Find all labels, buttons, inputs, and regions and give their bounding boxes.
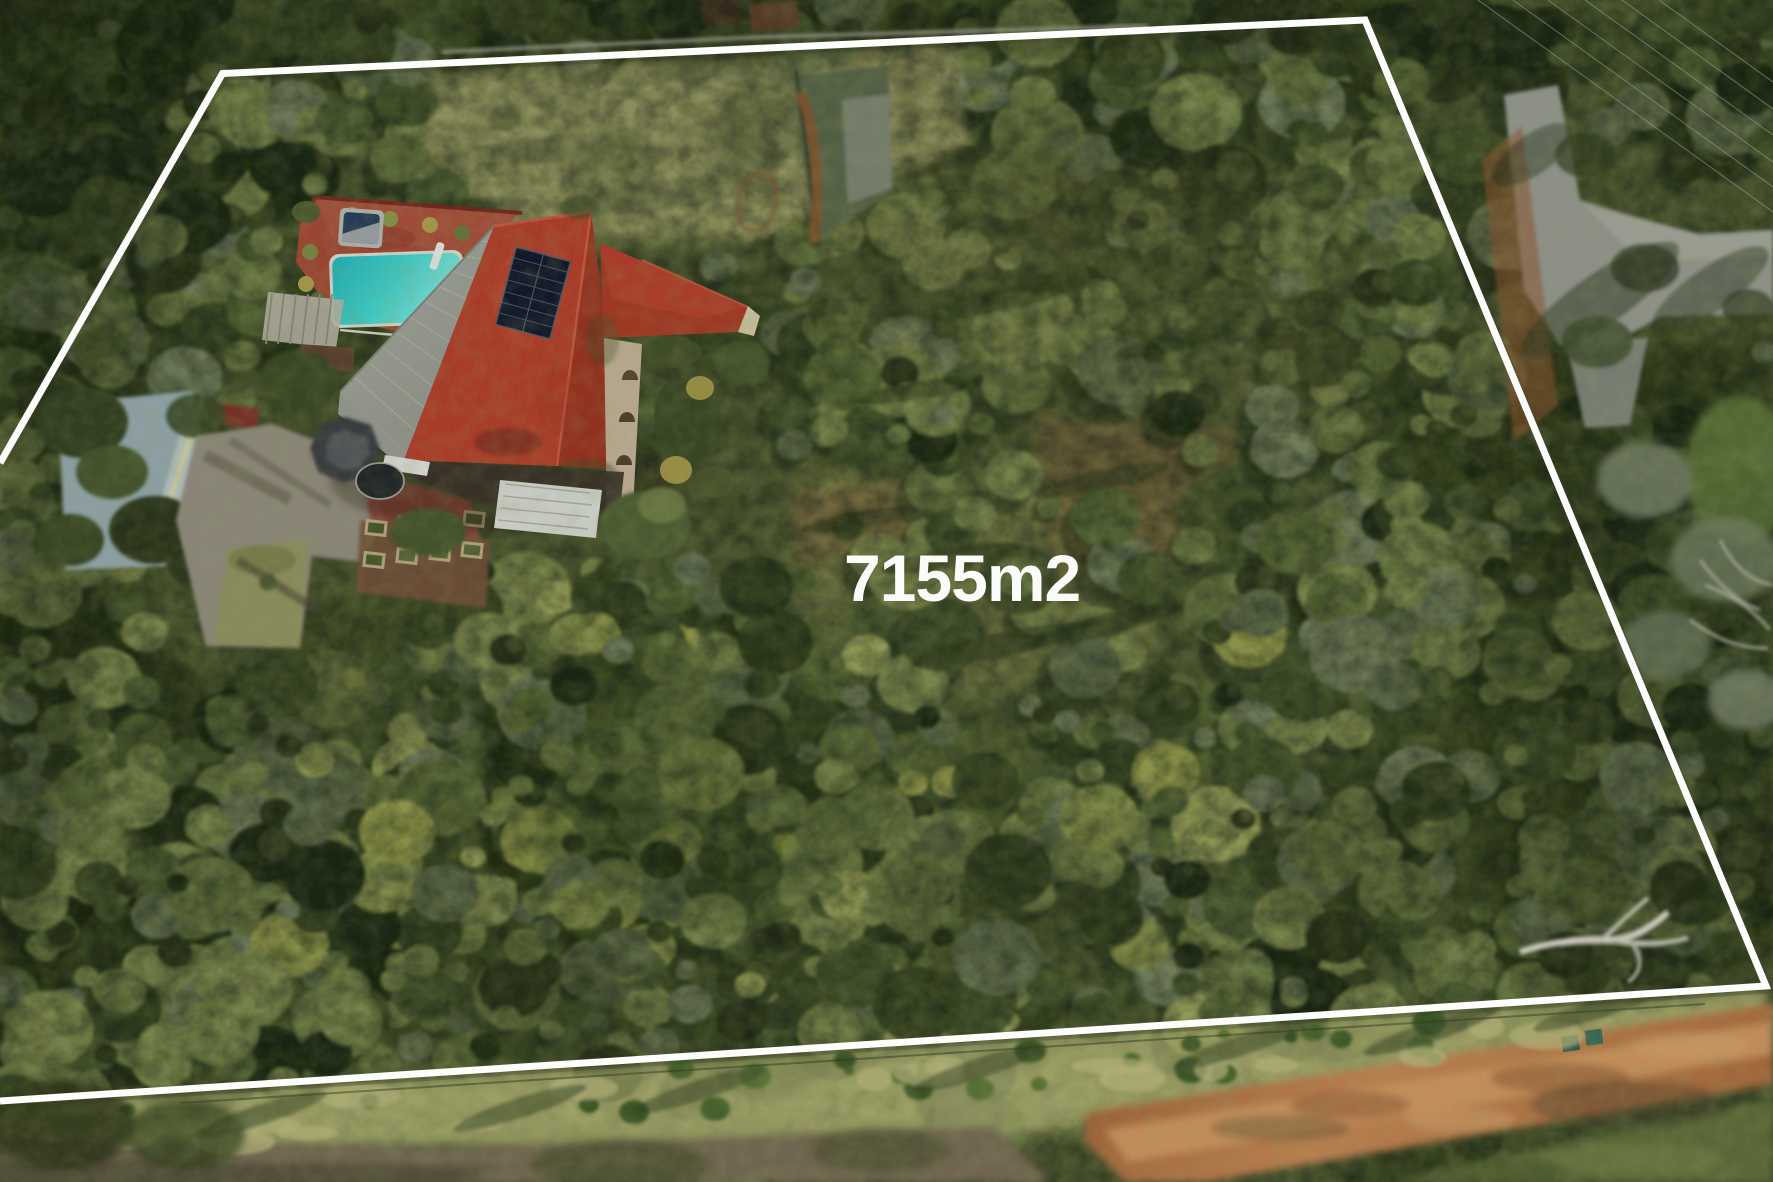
svg-text:7155m2: 7155m2 [844,541,1080,615]
